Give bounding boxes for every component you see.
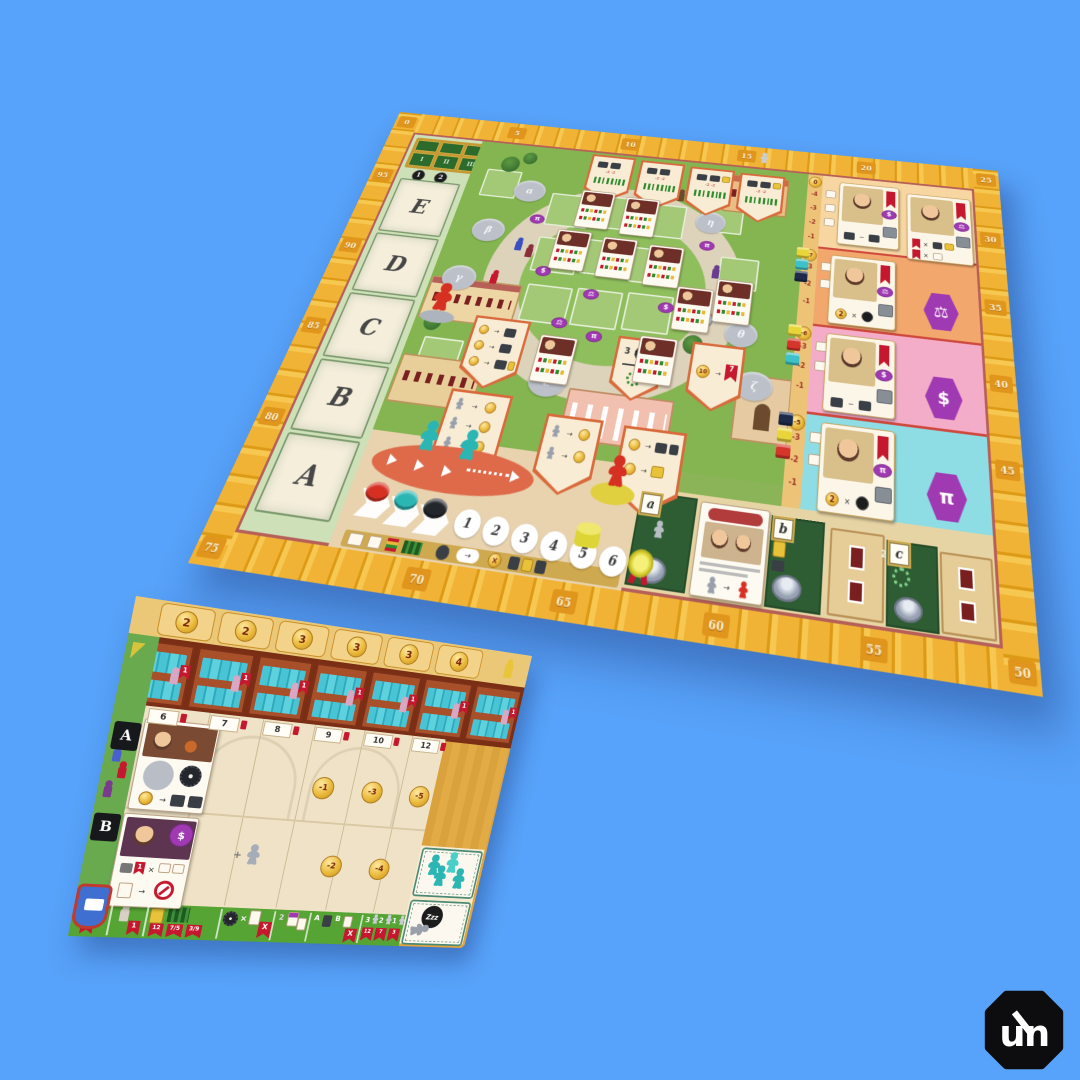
column-label: 12 bbox=[411, 738, 441, 754]
yellow-book-cube bbox=[796, 247, 809, 259]
row-tab-a: A bbox=[110, 721, 142, 752]
window bbox=[959, 600, 976, 623]
card-icons bbox=[649, 265, 678, 272]
card-icons bbox=[602, 256, 630, 263]
level-bars bbox=[694, 189, 705, 196]
card-art bbox=[823, 427, 874, 484]
red-flag bbox=[956, 203, 966, 221]
card-header bbox=[602, 239, 635, 256]
card-header bbox=[539, 337, 576, 357]
penalty-slot bbox=[825, 190, 836, 199]
card-icons bbox=[677, 308, 707, 315]
grey-disc-slot bbox=[140, 759, 176, 791]
arrow-icon: → bbox=[155, 792, 170, 807]
score-cell: 65 bbox=[549, 589, 579, 616]
multiply-icon: × bbox=[850, 311, 859, 320]
logo-monogram: un bbox=[999, 1012, 1048, 1055]
level-bars bbox=[770, 199, 778, 206]
windows bbox=[402, 370, 476, 389]
tile-icon bbox=[650, 466, 665, 479]
red-flag bbox=[877, 436, 888, 462]
mini-flag bbox=[912, 249, 920, 259]
power-icon bbox=[883, 227, 897, 239]
tile-icon bbox=[944, 243, 954, 251]
tile-icon bbox=[610, 163, 621, 170]
score-cell: 10 bbox=[620, 138, 641, 151]
card-art bbox=[828, 337, 876, 387]
multiply-icon: × bbox=[922, 252, 930, 260]
portrait bbox=[543, 339, 557, 351]
arrow-icon: → bbox=[712, 368, 724, 379]
rector-card: ⚖2× bbox=[827, 255, 896, 331]
rector-card: $− bbox=[836, 182, 899, 250]
card-icons bbox=[535, 367, 566, 375]
column-label: 7 bbox=[208, 715, 240, 733]
score-cell: 25 bbox=[976, 173, 996, 187]
main-game-board: 0 5 10 15 20 25 30 35 40 45 50 55 60 65 … bbox=[188, 112, 1043, 697]
flag-value: 7 bbox=[724, 364, 738, 382]
power-icon bbox=[876, 389, 892, 405]
penalty-step: -1 bbox=[799, 295, 814, 306]
arrow-icon: → bbox=[135, 885, 149, 897]
card-art bbox=[842, 186, 884, 226]
portrait bbox=[652, 249, 665, 260]
row-tab-b: B bbox=[89, 812, 121, 841]
arrow-icon: → bbox=[558, 449, 571, 462]
garden-label-a: a bbox=[640, 493, 662, 516]
portrait bbox=[721, 284, 734, 295]
yellow-book-cube bbox=[788, 324, 802, 337]
score-cell: 20 bbox=[856, 161, 875, 175]
portrait bbox=[606, 241, 619, 252]
portrait bbox=[585, 194, 597, 204]
level-bars bbox=[606, 178, 618, 185]
tile-icon bbox=[669, 444, 680, 455]
tile-icon bbox=[760, 181, 771, 188]
cyan-book-cube bbox=[785, 352, 800, 366]
card-header bbox=[718, 281, 752, 299]
bust-icon bbox=[855, 495, 869, 511]
coin-icon bbox=[572, 450, 586, 464]
tile-icon bbox=[859, 400, 872, 411]
tile-icon bbox=[830, 397, 843, 408]
tile-icon bbox=[171, 864, 185, 874]
card-art bbox=[701, 521, 764, 565]
coin-icon bbox=[628, 438, 642, 451]
count-label: 2 bbox=[879, 547, 889, 561]
book-glyph bbox=[84, 898, 105, 910]
card-icons bbox=[600, 265, 628, 272]
card-art bbox=[910, 197, 954, 236]
multiply-icon: × bbox=[145, 864, 157, 874]
garden-label-c: c bbox=[889, 542, 909, 566]
level-bars bbox=[758, 197, 769, 204]
minus-icon: − bbox=[858, 233, 866, 241]
multiply-icon: × bbox=[842, 496, 852, 508]
window bbox=[849, 545, 865, 571]
card-header bbox=[289, 913, 299, 918]
faculty-badge-icon: π bbox=[873, 463, 892, 479]
level-bars bbox=[643, 183, 654, 190]
penalty-step: -4 bbox=[808, 189, 822, 198]
banner-penalty: -2 -2 bbox=[642, 174, 677, 182]
card-icons bbox=[579, 216, 606, 222]
card-icons bbox=[717, 309, 747, 316]
coin-icon bbox=[473, 340, 486, 351]
portrait bbox=[643, 340, 657, 353]
score-cell: 5 bbox=[506, 127, 527, 140]
gear-count: 3 bbox=[622, 345, 633, 357]
portrait bbox=[735, 534, 752, 553]
faculty-badge-icon: $ bbox=[875, 369, 892, 383]
portrait bbox=[681, 291, 694, 303]
yellow-book-cube bbox=[777, 427, 792, 442]
coin-value: 10 bbox=[695, 364, 710, 379]
penalty-step: -3 bbox=[806, 203, 820, 212]
score-cell: 45 bbox=[995, 459, 1021, 481]
tile-icon bbox=[933, 242, 943, 250]
no-entry-icon bbox=[152, 880, 176, 900]
rector-card: $− bbox=[822, 333, 895, 420]
tile-icon bbox=[647, 167, 658, 174]
tile-icon bbox=[771, 560, 785, 573]
navy-book-cube bbox=[778, 411, 793, 426]
level-bars bbox=[656, 184, 667, 191]
score-cell: 15 bbox=[737, 149, 757, 162]
level-bars bbox=[707, 191, 718, 198]
logo-mark: un bbox=[982, 990, 1066, 1070]
study-cell bbox=[439, 142, 465, 154]
tile-icon bbox=[493, 360, 507, 370]
grass-plot bbox=[620, 292, 674, 335]
card-icons bbox=[556, 248, 584, 254]
faculty-badge-icon: $ bbox=[881, 210, 896, 221]
tile-icon bbox=[772, 540, 786, 558]
portrait bbox=[560, 233, 573, 243]
score-cell: 40 bbox=[989, 374, 1013, 394]
coin-icon bbox=[577, 428, 591, 441]
card-art bbox=[142, 722, 218, 762]
navy-book-cube bbox=[794, 270, 808, 282]
books bbox=[199, 657, 248, 682]
card-stack-icon bbox=[116, 882, 133, 898]
study-cell bbox=[414, 140, 440, 152]
window bbox=[958, 567, 975, 591]
event-card: → bbox=[688, 501, 770, 606]
grey-meeple-icon bbox=[650, 519, 668, 540]
bust-icon bbox=[861, 311, 873, 323]
tile-icon bbox=[869, 234, 880, 243]
card-icons bbox=[638, 368, 669, 376]
red-flag bbox=[886, 191, 895, 208]
card-header bbox=[556, 231, 589, 248]
power-icon bbox=[956, 236, 971, 248]
red-flag bbox=[880, 265, 890, 285]
person-figure bbox=[711, 268, 720, 279]
faculty-badge-icon: ⚖ bbox=[877, 286, 893, 298]
tile-icon bbox=[158, 863, 172, 873]
column-label: 8 bbox=[262, 721, 293, 738]
garden-label-b: b bbox=[773, 518, 794, 541]
arrow-icon: → bbox=[720, 580, 733, 595]
coin-icon bbox=[483, 402, 497, 415]
tile-icon bbox=[659, 169, 670, 176]
score-cell: 60 bbox=[702, 612, 731, 639]
card-icons bbox=[624, 223, 652, 229]
portrait bbox=[845, 267, 865, 286]
penalty-step: -1 bbox=[792, 379, 808, 391]
professor-card bbox=[670, 286, 714, 334]
portrait bbox=[710, 528, 729, 549]
resting-grey-meeple bbox=[409, 918, 429, 940]
tile-icon bbox=[696, 174, 707, 181]
column-label: 6 bbox=[146, 708, 179, 726]
professor-card bbox=[641, 244, 684, 288]
coin-icon bbox=[467, 356, 480, 367]
penalty-slot bbox=[825, 204, 836, 213]
card-icons bbox=[581, 208, 608, 214]
tile-icon bbox=[844, 232, 855, 240]
penalty-step: -2 bbox=[805, 217, 819, 226]
fox-icon bbox=[184, 740, 198, 753]
table-grid-icon bbox=[401, 540, 423, 555]
card-icons bbox=[718, 300, 747, 307]
tile-icon bbox=[597, 161, 608, 168]
portrait bbox=[853, 193, 872, 210]
level-bars bbox=[617, 179, 626, 186]
coin-value: 2 bbox=[835, 308, 847, 320]
arrow-icon: → bbox=[637, 464, 650, 477]
gear-icon bbox=[178, 765, 204, 788]
portrait bbox=[921, 204, 940, 221]
power-icon bbox=[875, 486, 892, 504]
minus-icon: − bbox=[846, 399, 855, 410]
rector-card: ⚖×× bbox=[907, 193, 974, 266]
card-header bbox=[626, 199, 658, 215]
coin-icon bbox=[137, 791, 154, 806]
tile-icon bbox=[498, 344, 512, 354]
coin-value: 2 bbox=[825, 491, 839, 507]
card-icons bbox=[639, 359, 670, 367]
portrait bbox=[629, 201, 641, 211]
coin-icon bbox=[478, 324, 491, 334]
arch-door bbox=[753, 403, 772, 432]
level-bars bbox=[745, 196, 756, 203]
tile-icon bbox=[933, 253, 943, 261]
arrow-icon: → bbox=[468, 400, 481, 412]
arrow-icon: → bbox=[490, 326, 502, 336]
arrow-icon: → bbox=[485, 341, 498, 352]
mini-flag bbox=[912, 238, 920, 248]
card-icons bbox=[538, 357, 569, 365]
professor-card bbox=[631, 335, 678, 387]
publisher-logo: un bbox=[982, 990, 1066, 1070]
portrait bbox=[837, 438, 860, 463]
yellow-round-marker bbox=[573, 527, 601, 549]
player-board: 2 2 3 3 3 4 1 1 1 1 1 1 1 6 7 8 9 10 12 … bbox=[68, 596, 532, 948]
card-header bbox=[581, 192, 613, 208]
score-cell: 35 bbox=[984, 299, 1007, 316]
rector-card: π2× bbox=[816, 422, 895, 522]
card-icons bbox=[676, 317, 706, 324]
level-bars bbox=[718, 192, 726, 199]
portrait bbox=[132, 825, 156, 846]
banner-penalty: -2 -2 bbox=[593, 168, 628, 176]
card-header bbox=[640, 338, 676, 358]
table-grid-icon bbox=[166, 907, 190, 923]
power-icon bbox=[878, 304, 893, 318]
tile-icon bbox=[187, 796, 203, 809]
red-flag bbox=[879, 345, 890, 367]
portrait bbox=[152, 731, 174, 751]
multiply-icon: × bbox=[922, 241, 930, 249]
level-bars bbox=[593, 177, 605, 184]
arrow-icon: → bbox=[563, 428, 576, 440]
card-icons bbox=[553, 257, 581, 264]
window bbox=[847, 579, 864, 604]
garden-building bbox=[827, 528, 885, 624]
professor-card bbox=[711, 279, 754, 326]
cyan-book-cube bbox=[795, 258, 808, 270]
tile-icon bbox=[654, 442, 667, 454]
tile-icon bbox=[722, 176, 731, 183]
score-cell: 30 bbox=[980, 232, 1002, 248]
arrow-icon: → bbox=[642, 440, 655, 452]
track-meeple-icon bbox=[758, 152, 771, 165]
portrait bbox=[841, 347, 862, 369]
quill-icon bbox=[119, 863, 133, 873]
penalty-step: -1 bbox=[804, 231, 818, 240]
red-book-cube bbox=[775, 444, 791, 460]
tile-icon bbox=[773, 183, 782, 190]
level-bars bbox=[668, 186, 676, 193]
tile-icon bbox=[709, 175, 720, 182]
mini-flag: 1 bbox=[133, 862, 146, 875]
card-art bbox=[833, 259, 878, 303]
penalty-slot bbox=[824, 218, 835, 227]
tile-icon bbox=[507, 361, 516, 371]
score-cell: 50 bbox=[1008, 658, 1038, 687]
arrow-icon: → bbox=[480, 357, 493, 368]
card-header bbox=[677, 288, 711, 306]
column-label: 10 bbox=[363, 732, 394, 749]
card-icons bbox=[647, 273, 676, 280]
column-label: 9 bbox=[313, 727, 343, 744]
card-icons bbox=[626, 216, 653, 222]
tile-icon bbox=[747, 180, 758, 187]
red-book-cube bbox=[787, 338, 801, 351]
tile-icon bbox=[169, 794, 185, 807]
score-cell: 55 bbox=[860, 635, 888, 663]
tile-icon bbox=[503, 328, 517, 338]
penalty-step: -1 bbox=[784, 475, 802, 489]
garden-building bbox=[940, 551, 998, 642]
card-header bbox=[649, 247, 682, 264]
faculty-badge-icon: ⚖ bbox=[954, 222, 970, 233]
